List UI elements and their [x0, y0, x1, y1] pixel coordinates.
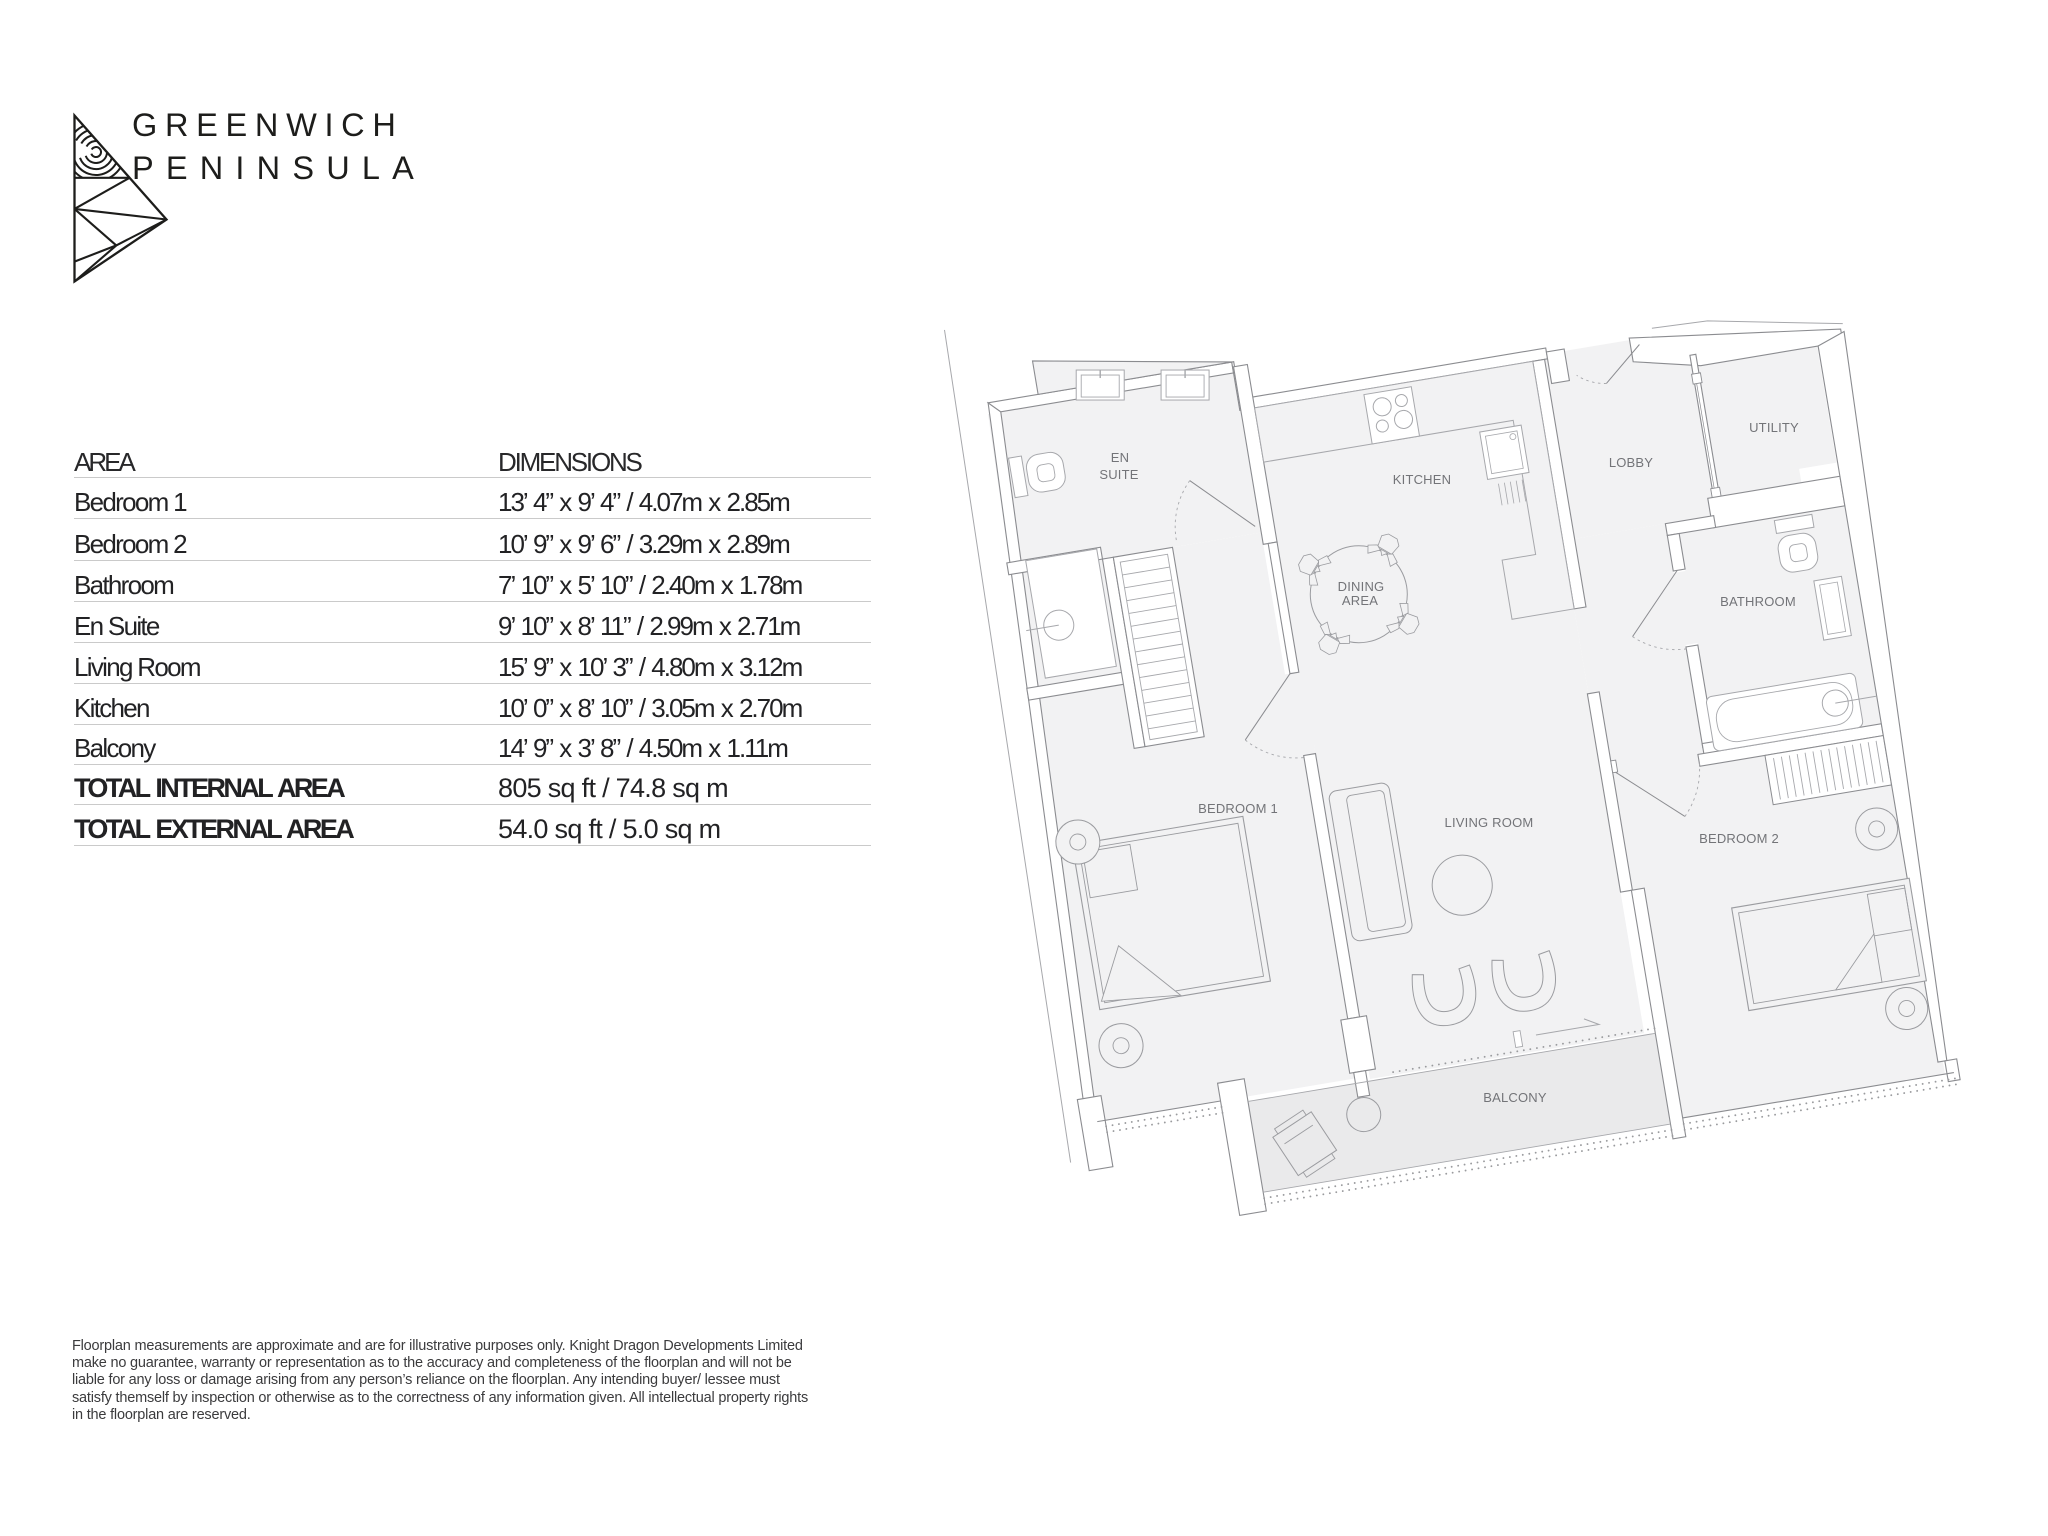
svg-text:EN: EN: [1111, 450, 1129, 465]
svg-text:SUITE: SUITE: [1099, 467, 1138, 482]
svg-text:BEDROOM 1: BEDROOM 1: [1198, 801, 1278, 816]
svg-text:LOBBY: LOBBY: [1609, 455, 1653, 470]
svg-text:UTILITY: UTILITY: [1749, 420, 1799, 435]
svg-text:DINING: DINING: [1338, 579, 1385, 594]
svg-text:BATHROOM: BATHROOM: [1720, 594, 1796, 609]
svg-text:BALCONY: BALCONY: [1483, 1090, 1547, 1105]
svg-text:AREA: AREA: [1342, 593, 1378, 608]
svg-text:LIVING ROOM: LIVING ROOM: [1445, 815, 1534, 830]
svg-text:BEDROOM 2: BEDROOM 2: [1699, 831, 1779, 846]
svg-text:KITCHEN: KITCHEN: [1393, 472, 1451, 487]
